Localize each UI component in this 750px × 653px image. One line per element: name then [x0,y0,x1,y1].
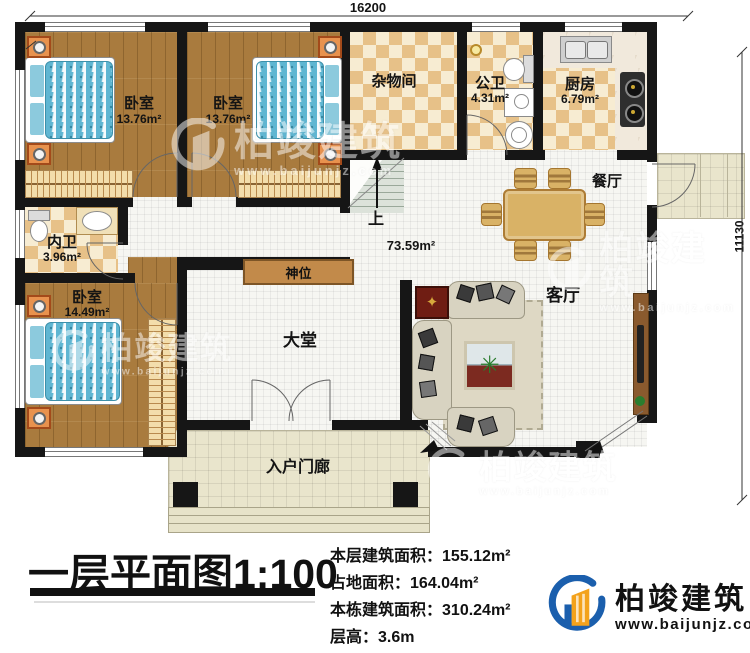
dining-table [503,189,586,241]
room-label-bedroom-bl: 卧室 [52,290,122,306]
title-block: 一层平面图1:100 本层建筑面积：155.12m² 占地面积：164.04m²… [0,535,750,653]
porch-step [168,523,430,533]
porch-column [393,482,418,507]
side-porch-joint [700,153,701,217]
nightstand [27,407,51,429]
ceiling-lamp-icon [470,44,482,56]
wall [348,150,467,160]
room-area-bedroom-tm: 13.76m² [188,113,268,126]
room-label-bedroom-tl: 卧室 [99,96,179,112]
room-area-public-bath: 4.31m² [458,92,522,105]
dining-chair [584,203,605,226]
wall [647,205,657,242]
window [208,22,310,32]
room-label-bedroom-tm: 卧室 [188,96,268,112]
window [472,22,520,32]
stats-list: 本层建筑面积：155.12m² 占地面积：164.04m² 本栋建筑面积：310… [330,543,511,651]
stat-row: 本层建筑面积：155.12m² [330,543,511,570]
wall [187,420,250,430]
shrine-shelf: 神位 [243,259,354,285]
wall [236,197,350,207]
hall-area-label: 73.59m² [378,239,444,253]
room-label-entry-porch: 入户门廊 [254,459,342,476]
wall [647,22,657,162]
room-label-kitchen: 厨房 [548,77,612,93]
room-label-dining: 餐厅 [580,174,634,190]
shrine-label: 神位 [285,263,311,282]
sofa-cushion [418,354,435,371]
wardrobe [238,170,341,198]
brand-name: 柏竣建筑 [615,583,750,616]
storage-floor [350,32,457,160]
wall [332,420,428,430]
wardrobe [25,170,133,198]
sofa-cushion [476,283,495,302]
side-door-gap [647,160,657,205]
title-underline [30,588,315,596]
nightstand [318,143,342,165]
room-label-public-bath: 公卫 [458,76,522,92]
room-label-hall: 大堂 [277,332,323,350]
dimension-top: 16200 [330,1,406,15]
sink-icon [82,211,112,231]
side-porch-floor [657,153,745,219]
window [647,242,657,290]
stat-row: 层高：3.6m [330,624,511,651]
title-underline-thin [34,601,315,603]
brand-logo: 柏竣建筑 www.baijunjz.com [545,575,750,641]
plant-icon [635,396,645,406]
floor-plan-page: 神位 卧室 13.76m² 卧室 13.76m² 杂物间 公卫 4.31m² 厨… [0,0,750,653]
wardrobe [148,318,176,446]
hall-living-wall [400,280,412,420]
window [45,447,143,457]
porch-column [173,482,198,507]
window [45,22,145,32]
dining-chair [548,240,571,261]
kitchen-sink-icon [560,36,612,63]
stat-row: 占地面积：164.04m² [330,570,511,597]
room-label-inner-bath: 内卫 [38,235,86,251]
dimension-right: 11130 [734,208,747,264]
room-area-bedroom-tl: 13.76m² [99,113,179,126]
dining-chair [514,168,537,189]
side-table [415,286,449,319]
stairs-up-label: 上 [364,211,388,228]
dining-chair [481,203,502,226]
room-area-kitchen: 6.79m² [548,93,612,106]
brand-logo-icon [545,575,607,641]
wall [428,447,585,457]
window [565,22,622,32]
wall [177,197,192,207]
nightstand [27,36,51,58]
wall [617,150,657,160]
wall [15,273,135,283]
room-area-inner-bath: 3.96m² [32,251,92,264]
brand-url: www.baijunjz.com [615,616,750,633]
wall [177,270,187,457]
wall [15,197,133,207]
tv-icon [637,325,644,383]
wall [505,150,545,160]
sofa-cushion [419,380,437,398]
room-area-bedroom-bl: 14.49m² [48,306,126,319]
dining-chair [514,240,537,261]
corner-window-post [576,441,600,458]
double-bed [25,318,122,405]
wall [533,32,543,150]
wall [118,207,128,245]
side-porch-joint [727,153,728,217]
pedestal-sink-bowl [511,127,527,143]
room-label-living: 客厅 [540,287,586,305]
dining-chair [548,168,571,189]
nightstand [27,143,51,165]
window [15,305,25,408]
room-label-storage: 杂物间 [353,74,435,90]
coffee-table [464,341,515,390]
stat-row: 本栋建筑面积：310.24m² [330,597,511,624]
stove-icon [620,72,645,127]
window [15,210,25,258]
nightstand [318,36,342,58]
window [15,70,25,160]
